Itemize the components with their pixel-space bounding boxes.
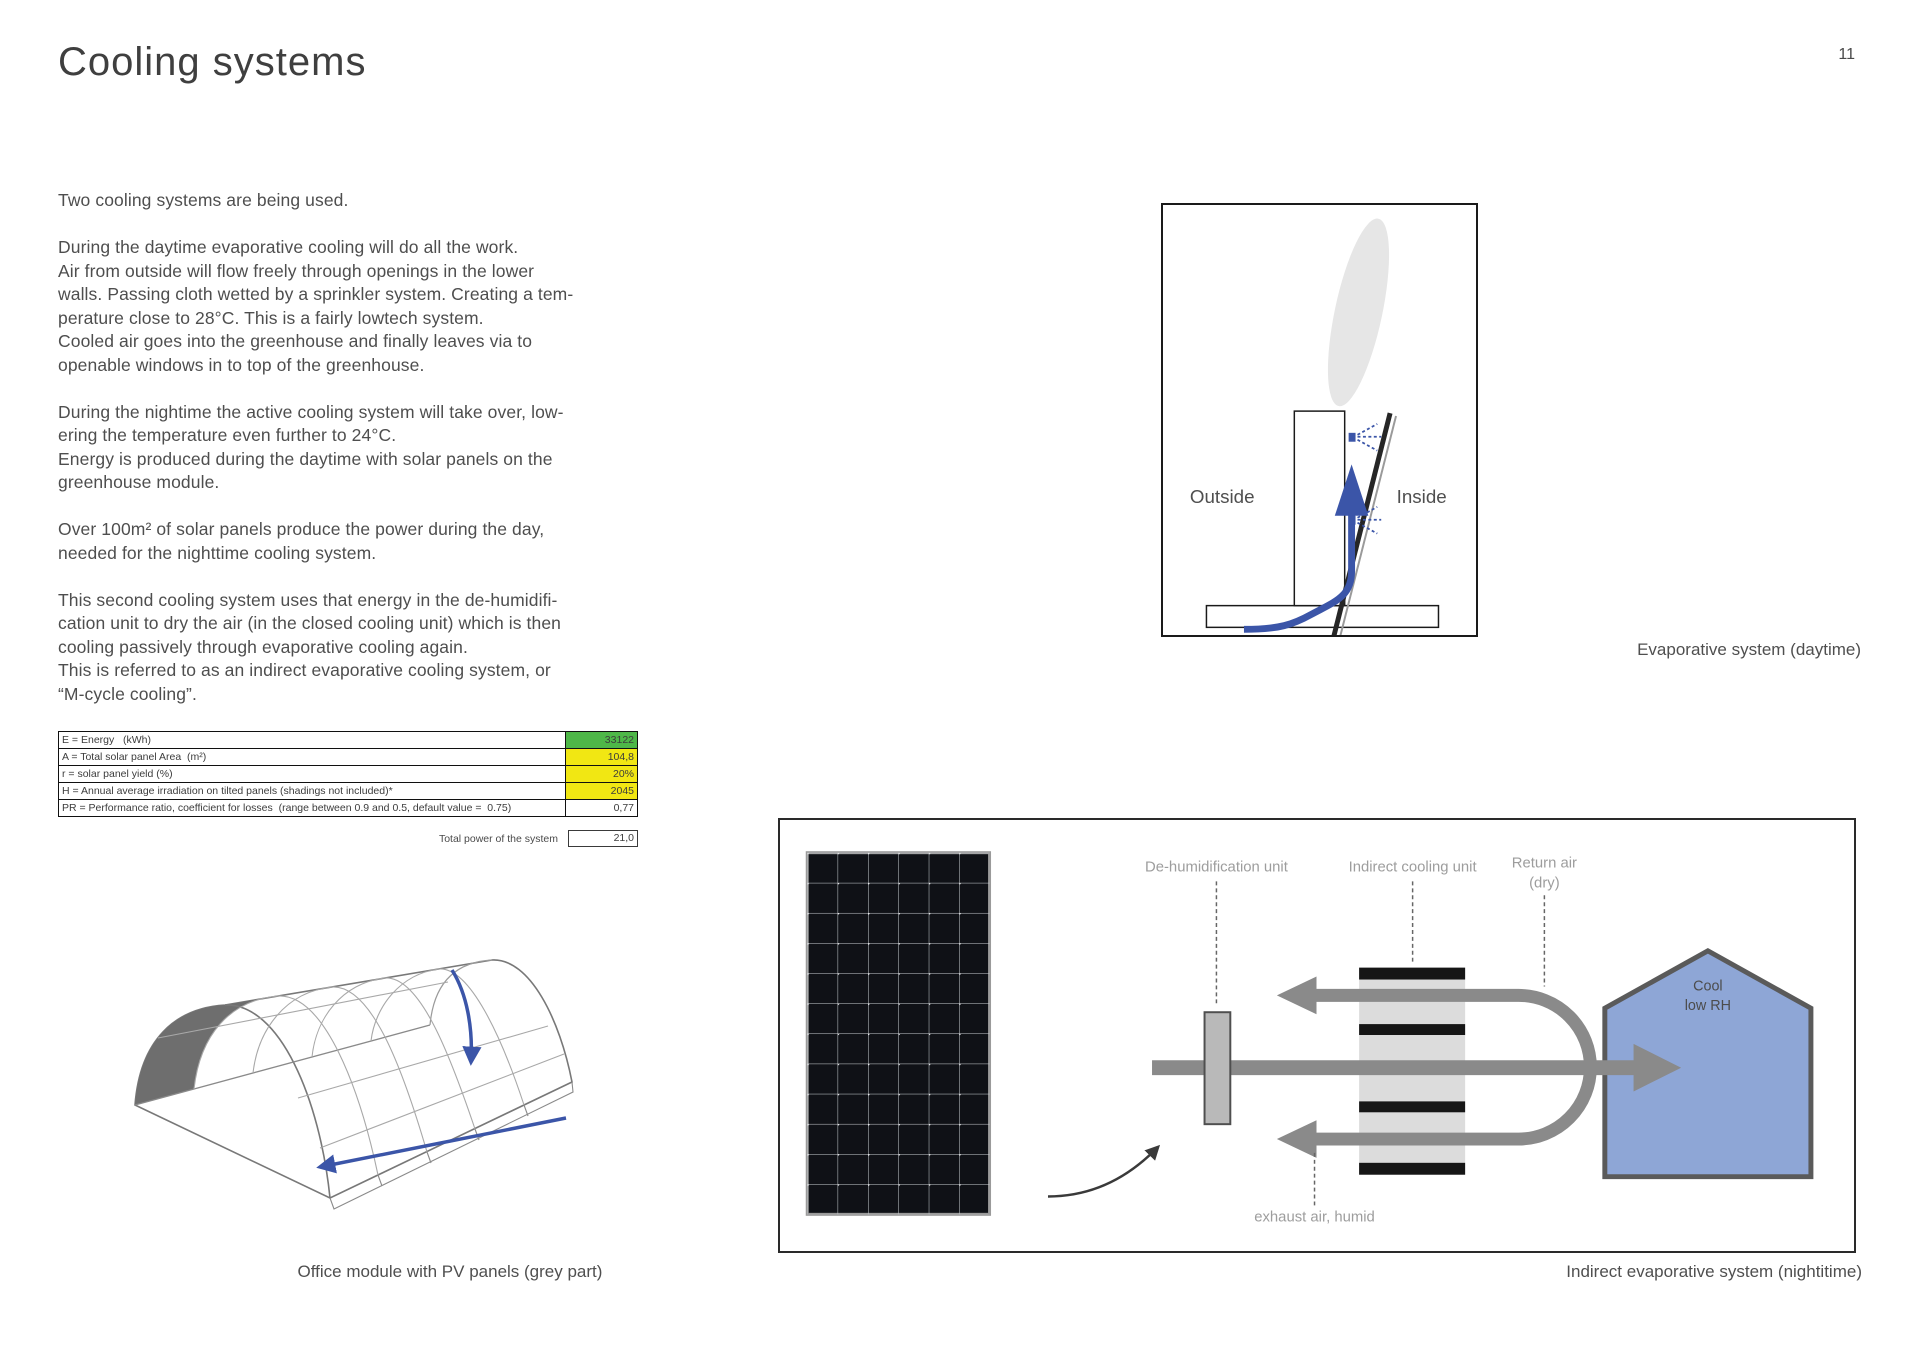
return-air-label-line1: Return air [1512, 856, 1577, 872]
evaporative-diagram: Outside Inside [1161, 203, 1478, 637]
exhaust-air-label: exhaust air, humid [1254, 1209, 1375, 1225]
table-row: A = Total solar panel Area (m²) 104,8 [59, 749, 637, 766]
return-air-label-line2: (dry) [1529, 875, 1560, 891]
wet-cloth-wall [1294, 411, 1344, 606]
paragraph-daytime: During the daytime evaporative cooling w… [58, 236, 668, 377]
energy-table: E = Energy (kWh) 33122 A = Total solar p… [58, 731, 638, 817]
house-label-line2: low RH [1685, 998, 1731, 1014]
table-row-label: r = solar panel yield (%) [59, 766, 566, 782]
sprinkler-upper-icon [1349, 424, 1382, 451]
paragraph-mcycle: This second cooling system uses that ene… [58, 589, 668, 707]
table-row: r = solar panel yield (%) 20% [59, 766, 637, 783]
power-arrow [1048, 1147, 1158, 1197]
total-power-value: 21,0 [568, 830, 638, 847]
body-text-column: Two cooling systems are being used. Duri… [58, 189, 668, 730]
table-row-value: 2045 [566, 783, 637, 799]
page-title: Cooling systems [58, 40, 366, 85]
evaporative-caption: Evaporative system (daytime) [1637, 640, 1861, 660]
indirect-caption: Indirect evaporative system (nightitime) [1566, 1262, 1862, 1282]
table-row: E = Energy (kWh) 33122 [59, 732, 637, 749]
table-row-value: 104,8 [566, 749, 637, 765]
table-row-value: 0,77 [566, 800, 637, 816]
outside-label: Outside [1190, 486, 1255, 507]
house-label-line1: Cool [1693, 978, 1723, 994]
office-module-caption: Office module with PV panels (grey part) [150, 1262, 750, 1282]
inside-label: Inside [1397, 486, 1447, 507]
module-silhouette [135, 960, 572, 1198]
indirect-cooling-label: Indirect cooling unit [1349, 860, 1478, 876]
table-row-value: 20% [566, 766, 637, 782]
return-duct-arrowhead-lower [1277, 1120, 1317, 1158]
table-row-label: A = Total solar panel Area (m²) [59, 749, 566, 765]
return-duct-arrowhead-upper [1277, 977, 1317, 1015]
table-row-label: PR = Performance ratio, coefficient for … [59, 800, 566, 816]
total-power-row: Total power of the system 21,0 [58, 830, 638, 847]
table-row: H = Annual average irradiation on tilted… [59, 783, 637, 800]
air-plume-shape [1315, 214, 1401, 411]
table-row-value: 33122 [566, 732, 637, 748]
paragraph-solar: Over 100m² of solar panels produce the p… [58, 518, 668, 565]
table-row-label: H = Annual average irradiation on tilted… [59, 783, 566, 799]
indirect-diagram: De-humidification unit Indirect cooling … [778, 818, 1856, 1253]
table-row: PR = Performance ratio, coefficient for … [59, 800, 637, 816]
paragraph-nighttime: During the nightime the active cooling s… [58, 401, 668, 495]
office-module-sketch [120, 930, 600, 1240]
table-row-label: E = Energy (kWh) [59, 732, 566, 748]
solar-panel-grid [807, 853, 989, 1215]
paragraph-intro: Two cooling systems are being used. [58, 189, 668, 213]
dehumidification-unit-shape [1205, 1012, 1231, 1124]
dehumidification-label: De-humidification unit [1145, 860, 1289, 876]
total-power-label: Total power of the system [58, 833, 568, 845]
page-number: 11 [1838, 46, 1855, 64]
